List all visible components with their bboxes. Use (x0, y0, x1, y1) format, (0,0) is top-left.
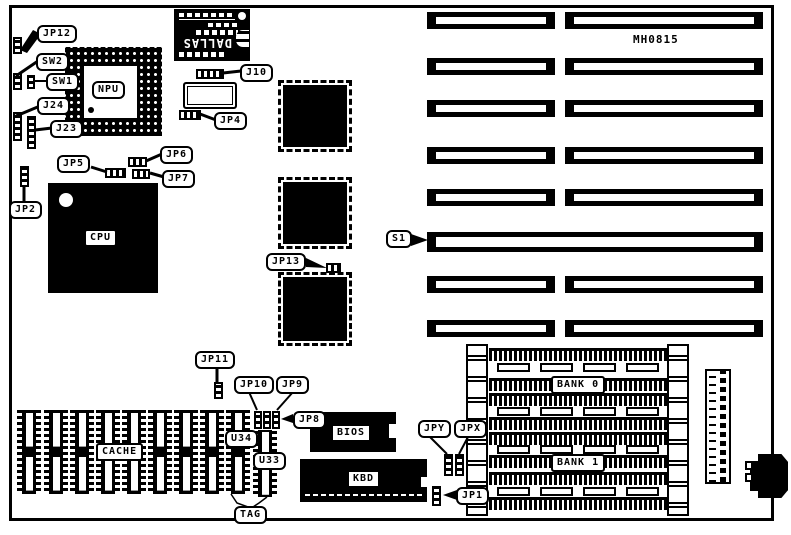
bank0-label: BANK 0 (551, 376, 605, 394)
callout-jp7-text: JP7 (168, 173, 189, 184)
callout-jp10-text: JP10 (240, 379, 268, 390)
callout-jp11: JP11 (195, 351, 235, 369)
callout-jp9: JP9 (276, 376, 309, 394)
callout-sw1: SW1 (46, 73, 79, 91)
callout-s1: S1 (386, 230, 412, 248)
callout-u33: U33 (253, 452, 286, 470)
callout-jp5: JP5 (57, 155, 90, 173)
callout-jpx: JPX (454, 420, 487, 438)
callout-jp7: JP7 (162, 170, 195, 188)
callout-u33-text: U33 (259, 455, 280, 466)
callout-tag-text: TAG (240, 509, 261, 520)
bank0-label-text: BANK 0 (557, 379, 599, 390)
npu-label: NPU (92, 81, 125, 99)
callout-u34-text: U34 (231, 433, 252, 444)
callout-j23-text: J23 (56, 123, 77, 134)
callout-j24: J24 (37, 97, 70, 115)
callout-sw2-text: SW2 (42, 56, 63, 67)
callout-jp12-text: JP12 (43, 28, 71, 39)
callout-jp8-text: JP8 (299, 414, 320, 425)
callout-jp13: JP13 (266, 253, 306, 271)
bios-label: BIOS (331, 424, 371, 442)
callout-j24-text: J24 (43, 100, 64, 111)
callout-jp1: JP1 (456, 487, 489, 505)
callout-jp1-text: JP1 (462, 490, 483, 501)
callout-jp12: JP12 (37, 25, 77, 43)
callout-jp9-text: JP9 (282, 379, 303, 390)
cache-label: CACHE (96, 443, 143, 461)
callout-tag: TAG (234, 506, 267, 524)
callout-u34: U34 (225, 430, 258, 448)
callout-jp2-text: JP2 (15, 204, 36, 215)
callout-jp5-text: JP5 (63, 158, 84, 169)
callout-jp4: JP4 (214, 112, 247, 130)
callout-jp2: JP2 (9, 201, 42, 219)
callout-jp6-text: JP6 (166, 149, 187, 160)
callout-jpy-text: JPY (424, 423, 445, 434)
callout-jp8: JP8 (293, 411, 326, 429)
cpu-label: CPU (84, 229, 117, 247)
callout-j23: J23 (50, 120, 83, 138)
kbd-label-text: KBD (353, 473, 374, 484)
npu-label-text: NPU (98, 84, 119, 95)
callout-jp4-text: JP4 (220, 115, 241, 126)
callout-j10: J10 (240, 64, 273, 82)
callout-jp11-text: JP11 (201, 354, 229, 365)
callout-jp13-text: JP13 (272, 256, 300, 267)
motherboard-diagram: NPU DALLAS CPU MH0815 CACHE (0, 0, 791, 535)
callout-sw2: SW2 (36, 53, 69, 71)
bank1-label-text: BANK 1 (557, 457, 599, 468)
cache-label-text: CACHE (102, 446, 137, 457)
callout-jpx-text: JPX (460, 423, 481, 434)
callout-jp10: JP10 (234, 376, 274, 394)
bios-label-text: BIOS (337, 427, 365, 438)
callout-s1-text: S1 (392, 233, 406, 244)
bank1-label: BANK 1 (551, 454, 605, 472)
callout-sw1-text: SW1 (52, 76, 73, 87)
cpu-label-text: CPU (90, 232, 111, 243)
callout-jpy: JPY (418, 420, 451, 438)
callout-j10-text: J10 (246, 67, 267, 78)
kbd-label: KBD (347, 470, 380, 488)
callout-jp6: JP6 (160, 146, 193, 164)
